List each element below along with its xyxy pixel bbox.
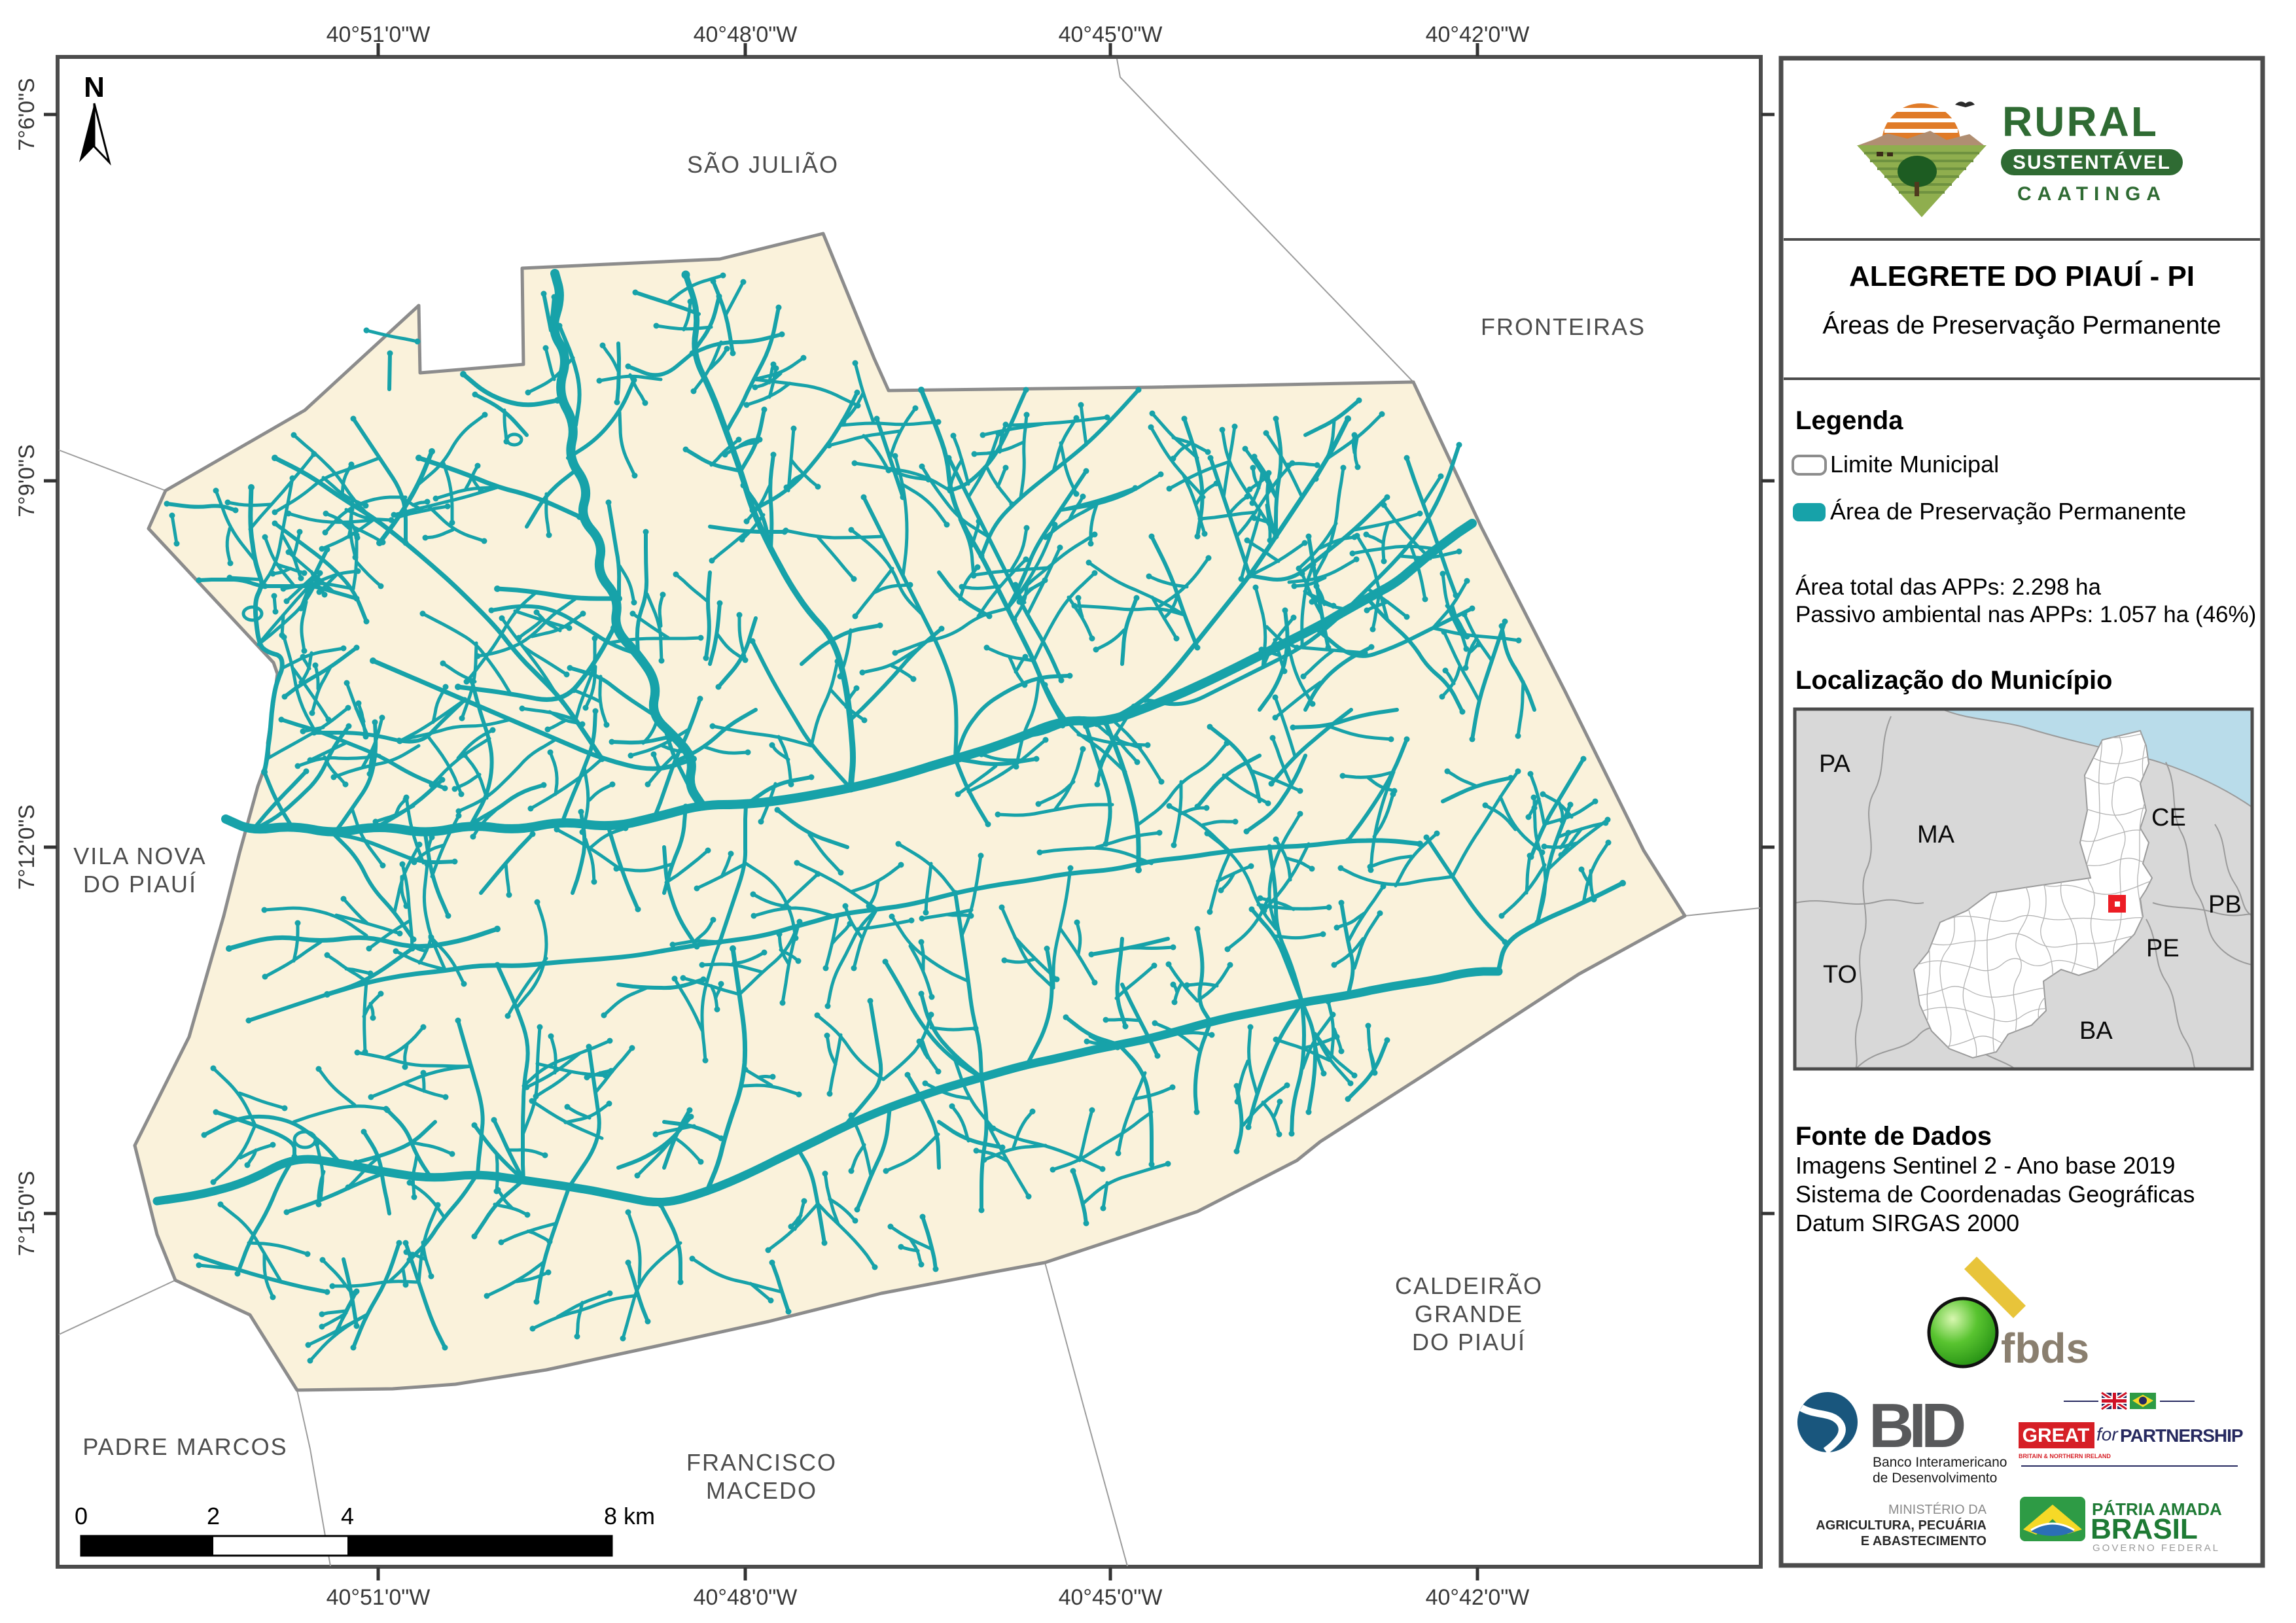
svg-text:DO PIAUÍ: DO PIAUÍ bbox=[1412, 1329, 1526, 1355]
svg-text:7°12'0"S: 7°12'0"S bbox=[14, 805, 39, 890]
svg-text:for: for bbox=[2096, 1424, 2119, 1444]
svg-text:2: 2 bbox=[207, 1503, 220, 1529]
svg-text:PA: PA bbox=[1819, 750, 1851, 778]
svg-text:Passivo ambiental nas APPs: 1.: Passivo ambiental nas APPs: 1.057 ha (46… bbox=[1795, 602, 2256, 627]
svg-text:SÃO JULIÃO: SÃO JULIÃO bbox=[687, 151, 839, 178]
svg-text:N: N bbox=[84, 71, 105, 103]
svg-text:Datum SIRGAS 2000: Datum SIRGAS 2000 bbox=[1795, 1210, 2019, 1236]
svg-text:TO: TO bbox=[1823, 961, 1857, 988]
svg-text:fbds: fbds bbox=[2001, 1325, 2089, 1372]
svg-text:MACEDO: MACEDO bbox=[706, 1477, 817, 1504]
svg-text:FRANCISCO: FRANCISCO bbox=[686, 1449, 837, 1476]
svg-text:PB: PB bbox=[2208, 891, 2242, 918]
svg-text:Banco Interamericano: Banco Interamericano bbox=[1873, 1455, 2007, 1470]
svg-text:FRONTEIRAS: FRONTEIRAS bbox=[1481, 313, 1646, 340]
svg-text:Fonte de Dados: Fonte de Dados bbox=[1795, 1122, 1992, 1151]
svg-text:E ABASTECIMENTO: E ABASTECIMENTO bbox=[1861, 1534, 1987, 1548]
svg-text:de Desenvolvimento: de Desenvolvimento bbox=[1873, 1471, 1997, 1486]
svg-text:ALEGRETE DO PIAUÍ - PI: ALEGRETE DO PIAUÍ - PI bbox=[1849, 260, 2195, 292]
svg-text:Área total das APPs: 2.298 ha: Área total das APPs: 2.298 ha bbox=[1795, 574, 2102, 600]
svg-text:PARTNERSHIP: PARTNERSHIP bbox=[2120, 1425, 2243, 1446]
svg-text:40°45'0"W: 40°45'0"W bbox=[1059, 22, 1163, 47]
svg-text:DO PIAUÍ: DO PIAUÍ bbox=[83, 871, 197, 898]
svg-text:RURAL: RURAL bbox=[2002, 98, 2159, 145]
svg-text:7°15'0"S: 7°15'0"S bbox=[14, 1171, 39, 1256]
svg-text:Imagens Sentinel 2 - Ano base: Imagens Sentinel 2 - Ano base 2019 bbox=[1795, 1152, 2175, 1179]
svg-text:Área de Preservação Permanente: Área de Preservação Permanente bbox=[1830, 498, 2186, 525]
svg-text:CALDEIRÃO: CALDEIRÃO bbox=[1395, 1272, 1543, 1299]
svg-text:CE: CE bbox=[2151, 804, 2186, 831]
svg-text:8 km: 8 km bbox=[604, 1503, 655, 1529]
svg-text:BRITAIN & NORTHERN IRELAND: BRITAIN & NORTHERN IRELAND bbox=[2019, 1453, 2111, 1459]
svg-text:PADRE MARCOS: PADRE MARCOS bbox=[82, 1433, 287, 1460]
svg-text:40°48'0"W: 40°48'0"W bbox=[694, 1585, 798, 1610]
svg-text:GREAT: GREAT bbox=[2022, 1425, 2090, 1446]
svg-text:BRASIL: BRASIL bbox=[2091, 1513, 2198, 1545]
svg-text:40°42'0"W: 40°42'0"W bbox=[1426, 22, 1530, 47]
svg-text:MA: MA bbox=[1917, 821, 1955, 848]
svg-text:Sistema de Coordenadas Geográf: Sistema de Coordenadas Geográficas bbox=[1795, 1181, 2195, 1208]
svg-text:SUSTENTÁVEL: SUSTENTÁVEL bbox=[2013, 151, 2171, 173]
svg-text:40°51'0"W: 40°51'0"W bbox=[327, 22, 431, 47]
svg-text:0: 0 bbox=[75, 1503, 88, 1529]
svg-text:MINISTÉRIO DA: MINISTÉRIO DA bbox=[1888, 1502, 1987, 1517]
svg-text:4: 4 bbox=[341, 1503, 354, 1529]
svg-text:40°45'0"W: 40°45'0"W bbox=[1059, 1585, 1163, 1610]
svg-text:GOVERNO FEDERAL: GOVERNO FEDERAL bbox=[2093, 1543, 2220, 1554]
svg-text:40°48'0"W: 40°48'0"W bbox=[694, 22, 798, 47]
svg-text:Áreas de Preservação Permanent: Áreas de Preservação Permanente bbox=[1822, 311, 2221, 340]
svg-text:Legenda: Legenda bbox=[1795, 406, 1903, 435]
svg-text:Localização do Município: Localização do Município bbox=[1795, 666, 2113, 695]
svg-text:GRANDE: GRANDE bbox=[1415, 1300, 1523, 1327]
svg-text:BID: BID bbox=[1869, 1391, 1964, 1461]
svg-text:CAATINGA: CAATINGA bbox=[2017, 183, 2166, 205]
svg-text:BA: BA bbox=[2079, 1017, 2113, 1045]
svg-text:AGRICULTURA, PECUÁRIA: AGRICULTURA, PECUÁRIA bbox=[1816, 1518, 1987, 1533]
svg-text:VILA NOVA: VILA NOVA bbox=[73, 843, 206, 869]
svg-text:40°51'0"W: 40°51'0"W bbox=[327, 1585, 431, 1610]
svg-text:Limite Municipal: Limite Municipal bbox=[1830, 451, 1999, 478]
svg-text:40°42'0"W: 40°42'0"W bbox=[1426, 1585, 1530, 1610]
svg-text:7°6'0"S: 7°6'0"S bbox=[14, 78, 39, 151]
svg-text:7°9'0"S: 7°9'0"S bbox=[14, 444, 39, 517]
svg-text:PE: PE bbox=[2146, 935, 2180, 962]
